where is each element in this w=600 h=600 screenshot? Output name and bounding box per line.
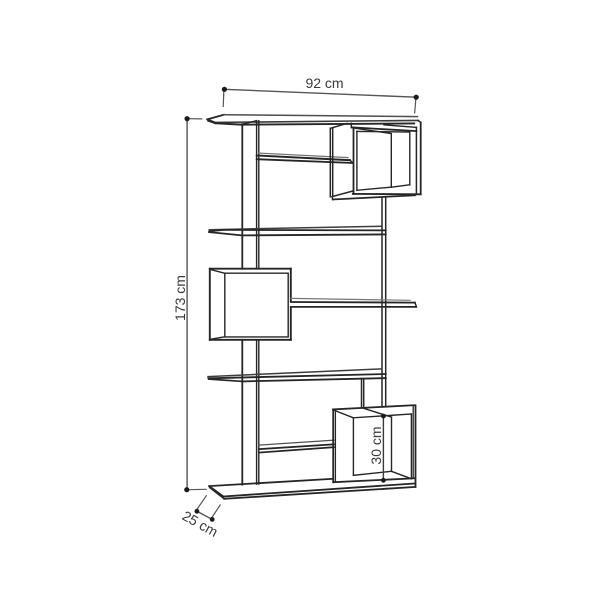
- svg-text:173 cm: 173 cm: [172, 275, 188, 321]
- svg-text:92 cm: 92 cm: [305, 75, 343, 91]
- svg-text:25 cm: 25 cm: [180, 507, 221, 539]
- svg-text:30 cm: 30 cm: [368, 426, 384, 464]
